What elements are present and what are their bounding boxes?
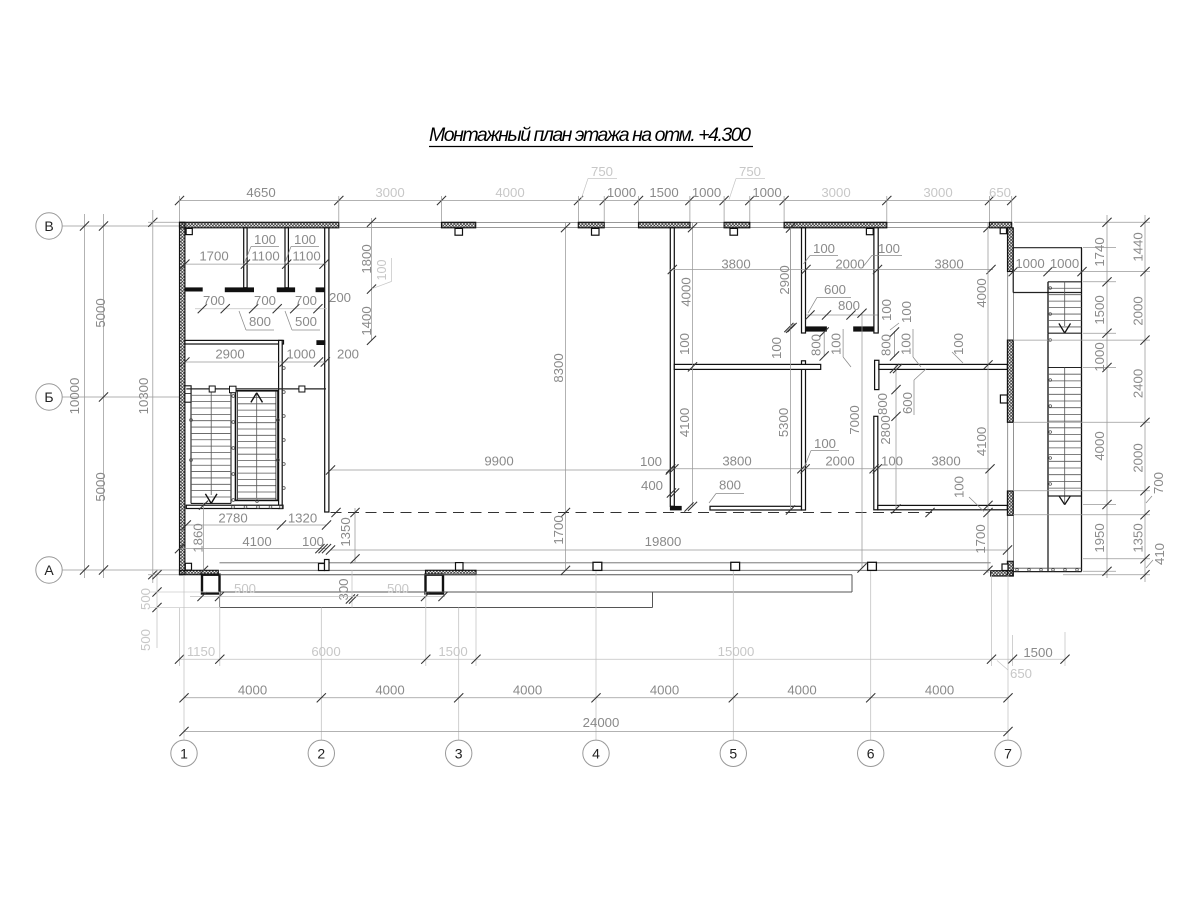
svg-text:4650: 4650 <box>246 185 275 200</box>
svg-text:800: 800 <box>719 478 741 493</box>
svg-text:5300: 5300 <box>776 408 791 437</box>
svg-text:2900: 2900 <box>215 347 244 362</box>
svg-text:7000: 7000 <box>847 405 862 434</box>
svg-text:3000: 3000 <box>821 185 850 200</box>
svg-text:5000: 5000 <box>93 472 108 501</box>
svg-text:800: 800 <box>875 393 890 415</box>
svg-text:4000: 4000 <box>925 683 954 698</box>
svg-text:300: 300 <box>336 578 351 600</box>
svg-text:3800: 3800 <box>934 257 963 272</box>
svg-text:1000: 1000 <box>286 347 315 362</box>
svg-text:800: 800 <box>249 314 271 329</box>
svg-text:5: 5 <box>729 745 737 761</box>
svg-text:500: 500 <box>138 629 153 651</box>
svg-text:1000: 1000 <box>1092 342 1107 371</box>
svg-text:100: 100 <box>294 232 316 247</box>
svg-text:100: 100 <box>879 299 894 321</box>
svg-text:500: 500 <box>295 314 317 329</box>
svg-text:100: 100 <box>813 241 835 256</box>
svg-text:Монтажный план этажа на отм. +: Монтажный план этажа на отм. +4.300 <box>429 124 751 146</box>
svg-text:4000: 4000 <box>974 278 989 307</box>
svg-text:3800: 3800 <box>931 454 960 469</box>
svg-text:В: В <box>44 218 53 234</box>
svg-text:2800: 2800 <box>878 415 893 444</box>
svg-text:410: 410 <box>1152 543 1167 565</box>
svg-text:2000: 2000 <box>825 454 854 469</box>
svg-text:4000: 4000 <box>787 683 816 698</box>
svg-text:100: 100 <box>951 476 966 498</box>
svg-text:4000: 4000 <box>1092 431 1107 460</box>
svg-text:2000: 2000 <box>1130 296 1145 325</box>
svg-text:1000: 1000 <box>1050 256 1079 271</box>
svg-text:6: 6 <box>867 745 875 761</box>
svg-text:1000: 1000 <box>692 185 721 200</box>
svg-text:100: 100 <box>640 454 662 469</box>
svg-text:600: 600 <box>900 392 915 414</box>
svg-text:800: 800 <box>838 298 860 313</box>
svg-text:7: 7 <box>1004 745 1012 761</box>
svg-text:100: 100 <box>814 436 836 451</box>
svg-text:750: 750 <box>591 164 613 179</box>
svg-text:100: 100 <box>302 534 324 549</box>
svg-text:4000: 4000 <box>238 683 267 698</box>
svg-text:1500: 1500 <box>649 185 678 200</box>
svg-text:4100: 4100 <box>974 427 989 456</box>
svg-text:1350: 1350 <box>338 517 353 546</box>
svg-text:10000: 10000 <box>67 378 82 415</box>
svg-text:19800: 19800 <box>645 534 682 549</box>
svg-text:10300: 10300 <box>136 378 151 415</box>
svg-text:1700: 1700 <box>551 515 566 544</box>
svg-text:1000: 1000 <box>1015 256 1044 271</box>
svg-text:3800: 3800 <box>721 257 750 272</box>
svg-text:700: 700 <box>254 293 276 308</box>
svg-text:500: 500 <box>138 588 153 610</box>
svg-text:2900: 2900 <box>777 265 792 294</box>
svg-text:4: 4 <box>592 745 600 761</box>
svg-text:4100: 4100 <box>242 534 271 549</box>
svg-text:600: 600 <box>824 282 846 297</box>
svg-text:750: 750 <box>739 164 761 179</box>
svg-text:2000: 2000 <box>835 257 864 272</box>
svg-text:1000: 1000 <box>752 185 781 200</box>
svg-text:100: 100 <box>881 454 903 469</box>
svg-text:24000: 24000 <box>583 715 620 730</box>
svg-text:1100: 1100 <box>292 249 320 264</box>
svg-text:100: 100 <box>677 333 692 355</box>
svg-text:1000: 1000 <box>607 185 636 200</box>
svg-text:500: 500 <box>387 581 409 596</box>
svg-text:1440: 1440 <box>1130 232 1145 261</box>
svg-text:4000: 4000 <box>650 683 679 698</box>
svg-text:1500: 1500 <box>1092 295 1107 324</box>
svg-text:400: 400 <box>641 478 663 493</box>
svg-text:1100: 1100 <box>251 249 279 264</box>
svg-text:800: 800 <box>878 334 893 356</box>
svg-text:1740: 1740 <box>1092 237 1107 266</box>
svg-text:1150: 1150 <box>187 644 215 659</box>
svg-text:9900: 9900 <box>484 454 513 469</box>
svg-text:200: 200 <box>329 290 351 305</box>
svg-text:100: 100 <box>829 333 844 355</box>
svg-text:3800: 3800 <box>722 454 751 469</box>
svg-text:1500: 1500 <box>1023 645 1052 660</box>
svg-text:100: 100 <box>769 337 784 359</box>
svg-text:1350: 1350 <box>1130 523 1145 552</box>
svg-text:100: 100 <box>951 333 966 355</box>
svg-text:4100: 4100 <box>677 408 692 437</box>
svg-text:4000: 4000 <box>495 185 524 200</box>
svg-text:1700: 1700 <box>199 249 228 264</box>
svg-text:800: 800 <box>808 334 823 356</box>
svg-text:700: 700 <box>295 293 317 308</box>
svg-text:2400: 2400 <box>1130 369 1145 398</box>
svg-text:1320: 1320 <box>288 511 317 526</box>
svg-text:500: 500 <box>234 581 256 596</box>
svg-text:1700: 1700 <box>973 524 988 553</box>
svg-text:2780: 2780 <box>218 511 247 526</box>
svg-text:1800: 1800 <box>359 244 374 273</box>
svg-text:4000: 4000 <box>679 277 694 306</box>
svg-text:3000: 3000 <box>375 185 404 200</box>
svg-text:15000: 15000 <box>718 644 755 659</box>
svg-text:1500: 1500 <box>438 644 467 659</box>
svg-text:8300: 8300 <box>551 353 566 382</box>
svg-text:3: 3 <box>455 745 463 761</box>
svg-text:700: 700 <box>203 293 225 308</box>
svg-text:2: 2 <box>317 745 325 761</box>
svg-text:3000: 3000 <box>923 185 952 200</box>
svg-text:200: 200 <box>337 347 359 362</box>
svg-text:100: 100 <box>899 301 914 323</box>
svg-text:650: 650 <box>989 185 1011 200</box>
svg-text:100: 100 <box>375 260 389 281</box>
svg-text:650: 650 <box>1010 666 1032 681</box>
svg-text:2000: 2000 <box>1130 443 1145 472</box>
svg-text:6000: 6000 <box>311 644 340 659</box>
svg-text:Б: Б <box>44 389 53 405</box>
svg-text:1950: 1950 <box>1092 523 1107 552</box>
svg-text:4000: 4000 <box>513 683 542 698</box>
svg-text:700: 700 <box>1151 472 1166 494</box>
svg-text:А: А <box>44 562 54 578</box>
svg-text:100: 100 <box>254 232 276 247</box>
svg-text:100: 100 <box>878 241 900 256</box>
svg-text:100: 100 <box>898 333 913 355</box>
svg-text:5000: 5000 <box>93 298 108 327</box>
svg-text:1400: 1400 <box>359 306 374 335</box>
svg-text:1: 1 <box>180 745 188 761</box>
svg-text:4000: 4000 <box>375 683 404 698</box>
